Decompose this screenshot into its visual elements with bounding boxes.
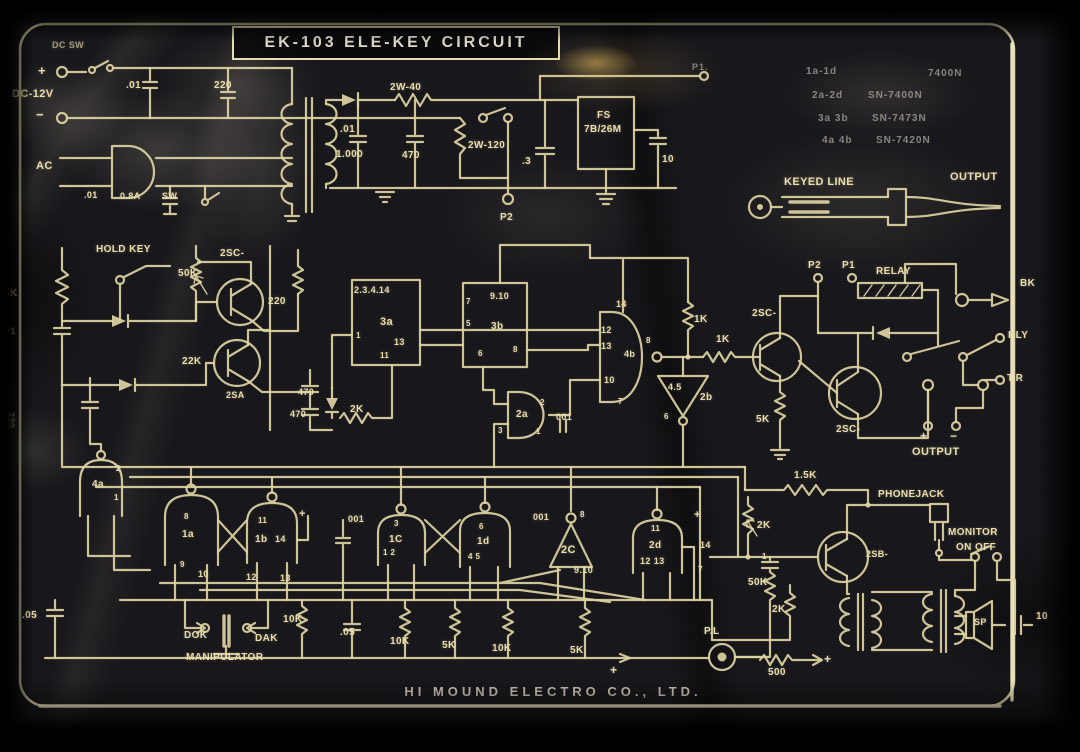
label-pin-8a: 8: [513, 345, 518, 354]
label-pin-g1213: 12 13: [640, 556, 665, 566]
label-output-top: OUTPUT: [950, 171, 998, 183]
label-res-5k-b: 5K: [570, 645, 584, 656]
label-pin-g9: 9: [180, 560, 185, 569]
label-res-1k-b: 1K: [716, 334, 730, 345]
label-dok: DOK: [184, 630, 207, 641]
label-plus-out: +: [920, 429, 927, 443]
label-p2-relay: P2: [808, 260, 821, 271]
label-gate-2d: 2d: [649, 540, 661, 551]
label-pin-g11b: 11: [651, 524, 660, 533]
label-pin-g10: 10: [198, 569, 209, 579]
label-res-2k-c: 2K: [772, 604, 786, 615]
label-plus-2d: +: [694, 509, 701, 521]
label-ic3a: 3a: [380, 316, 393, 328]
label-pin-4a1: 1: [114, 493, 119, 502]
label-inv-2c: 2C: [561, 544, 576, 556]
label-res-220-b: 220: [268, 296, 286, 307]
label-res-500: 500: [768, 667, 786, 678]
label-pin-g11: 11: [258, 516, 267, 525]
label-cap-220-a: 220: [214, 80, 232, 91]
label-res-10k-a: 10K: [283, 614, 303, 625]
label-p2-top: P2: [500, 212, 513, 223]
label-cap-05-a: .05: [22, 610, 37, 621]
manufacturer-footer: HI MOUND ELECTRO CO., LTD.: [404, 684, 701, 699]
photo-of-schematic-panel: EK-103 ELE-KEY CIRCUIT DC SW+DC-12V−.012…: [0, 0, 1080, 752]
label-fuse-08a: 0.8A: [120, 191, 141, 201]
label-pin-10: 10: [604, 375, 615, 385]
label-gate-1b: 1b: [255, 534, 267, 545]
label-gate-1a: 1a: [182, 529, 194, 540]
label-ic-3b: SN-7473N: [872, 113, 927, 124]
label-cap-01-b: .01: [84, 190, 98, 200]
label-gate-2a: 2a: [516, 409, 528, 420]
label-pin-g14b: 14: [700, 540, 711, 550]
label-pin-g14: 14: [275, 534, 286, 544]
schematic-labels-layer: DC SW+DC-12V−.01220AC.010.8ASW.011.00047…: [0, 0, 1080, 752]
label-ic-1b: 7400N: [928, 68, 962, 79]
label-plus-rail: +: [610, 663, 617, 677]
label-pin-7b: 7: [618, 397, 623, 406]
label-ic-1a: 1a-1d: [806, 66, 837, 77]
label-gate-4b: 4b: [624, 349, 635, 359]
label-gate-1c: 1C: [389, 534, 403, 545]
label-inv-2b-45: 4.5: [668, 382, 682, 392]
label-inv-2b: 2b: [700, 392, 712, 403]
label-bk: BK: [1020, 278, 1035, 289]
label-q2: 2SA: [226, 390, 245, 400]
label-cap-1: 1: [762, 552, 767, 561]
label-pin-g8: 8: [184, 512, 189, 521]
label-pin-7: 7: [466, 297, 471, 306]
label-on-off: ON OFF: [956, 542, 996, 553]
label-pin-5: 5: [466, 319, 471, 328]
label-q5: 2SB-: [866, 549, 888, 559]
label-ic3a-pins: 2.3.4.14: [354, 285, 390, 295]
label-res-2w120: 2W-120: [468, 140, 505, 151]
label-pot-50k-b: 50K: [748, 577, 768, 588]
label-res-1k-a: 1K: [694, 314, 708, 325]
label-cap-220-vert: 220: [6, 412, 16, 428]
label-cap-dot3: .3: [522, 156, 531, 167]
label-hold-key: HOLD KEY: [96, 244, 151, 255]
label-pin-12: 12: [601, 325, 612, 335]
label-fs-1: FS: [597, 110, 611, 121]
label-pin-1: 1: [356, 331, 361, 340]
label-res-2k-b: 2K: [757, 520, 771, 531]
label-dc-sw: DC SW: [52, 40, 84, 50]
label-pin-g13: 13: [280, 573, 291, 583]
label-cap-10-b: 10: [1036, 611, 1048, 622]
label-rly: RLY: [1008, 330, 1028, 341]
label-pin-g7: 7: [698, 565, 703, 574]
label-res-10k-c: 10K: [492, 643, 512, 654]
label-pin-6b: 6: [664, 412, 669, 421]
label-cap-470: 470: [402, 150, 420, 161]
label-pin-2a1: 1: [536, 427, 541, 436]
label-ic-4b: SN-7420N: [876, 135, 931, 146]
label-ac: AC: [36, 160, 53, 172]
label-pin-g3: 3: [394, 519, 399, 528]
label-res-5k-mid: 5K: [756, 414, 770, 425]
label-output-mid: OUTPUT: [912, 446, 960, 458]
label-pin-g12: 12: [246, 572, 257, 582]
label-q4: 2SC-: [836, 424, 860, 435]
label-pot-50k: 50K: [178, 268, 198, 279]
label-pin-13b: 13: [601, 341, 612, 351]
label-cap-05-b: .05: [340, 627, 355, 638]
label-gate-1d: 1d: [477, 536, 489, 547]
label-pin-2a2: 2: [540, 398, 545, 407]
label-p1-top: P1.: [692, 62, 709, 72]
label-keyed-line: KEYED LINE: [784, 176, 854, 188]
label-plus-in: +: [38, 63, 46, 78]
label-gate-4a: 4a: [92, 479, 104, 490]
label-res-22k: 22K: [182, 356, 202, 367]
label-pin-g6: 6: [479, 522, 484, 531]
label-q1: 2SC-: [220, 248, 244, 259]
label-phone-jack: PHONEJACK: [878, 489, 944, 500]
label-res-2w40: 2W-40: [390, 82, 421, 93]
label-res-5k-left: 5K: [4, 288, 18, 299]
label-pin-910b: 9.10: [574, 565, 593, 575]
label-minus-in: −: [36, 107, 44, 122]
label-cap-10: 10: [662, 154, 674, 165]
label-minus-out: −: [950, 429, 957, 443]
label-res-2k-a: 2K: [350, 404, 364, 415]
label-cap-470-a: 470: [298, 387, 314, 397]
label-ic-2b: SN-7400N: [868, 90, 923, 101]
label-res-15k: 1.5K: [794, 470, 817, 481]
label-relay: RELAY: [876, 266, 911, 277]
label-dak: DAK: [255, 633, 278, 644]
label-pin-910: 9.10: [490, 291, 509, 301]
label-cap-01-left: .01: [2, 326, 16, 336]
label-ic-2a: 2a-2d: [812, 90, 843, 101]
label-cap-01-c: .01: [340, 124, 355, 135]
label-cap-001-b: 001: [348, 514, 364, 524]
label-pin-g45: 4 5: [468, 552, 480, 561]
label-res-5k-a: 5K: [442, 640, 456, 651]
label-q3: 2SC-: [752, 308, 776, 319]
label-sp: SP: [974, 617, 987, 627]
label-fs-2: 7B/26M: [584, 124, 621, 135]
label-plus-1b: +: [299, 508, 306, 520]
label-sw: SW: [162, 191, 177, 201]
label-dc-12v: DC-12V: [12, 88, 54, 100]
label-plus-pl: +: [824, 652, 831, 666]
label-p1-relay: P1: [842, 260, 855, 271]
label-tr: T.R: [1007, 373, 1023, 384]
label-cap-001-a: 001: [556, 412, 572, 422]
label-pin-4a2: 2: [116, 464, 121, 473]
label-res-10k-b: 10K: [390, 636, 410, 647]
label-pin-11: 11: [380, 351, 389, 360]
label-ic3b: 3b: [491, 321, 503, 332]
label-pin-13: 13: [394, 337, 405, 347]
label-pin-g12b: 1 2: [383, 548, 395, 557]
label-cap-470-b: 470: [290, 409, 306, 419]
label-pin-g8b: 8: [580, 510, 585, 519]
label-manipulator: MANIPULATOR: [186, 652, 263, 663]
label-ic-3a: 3a 3b: [818, 113, 849, 124]
label-ic-4a: 4a 4b: [822, 135, 853, 146]
label-pl: P.L: [704, 626, 719, 637]
label-cap-001-c: 001: [533, 512, 549, 522]
label-monitor: MONITOR: [948, 527, 998, 538]
label-cap-1000: 1.000: [336, 149, 363, 160]
label-pin-6: 6: [478, 349, 483, 358]
label-pin-8b: 8: [646, 336, 651, 345]
label-pin-2a3: 3: [498, 426, 503, 435]
label-pin-14: 14: [616, 299, 627, 309]
label-cap-01-a: .01: [126, 80, 141, 91]
